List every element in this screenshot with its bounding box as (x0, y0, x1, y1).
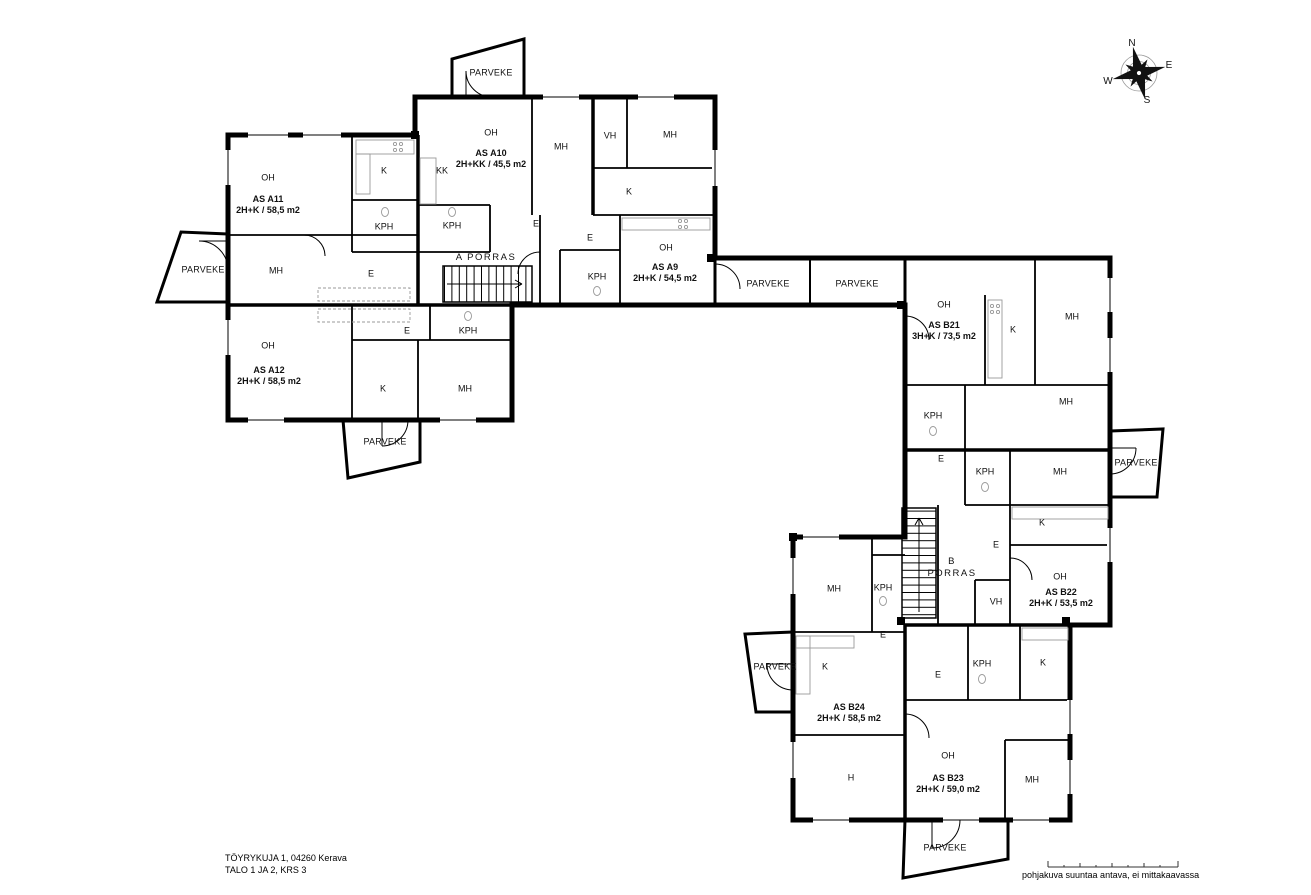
room-label-a11-oh: OH (261, 172, 275, 183)
address-line-2: TALO 1 JA 2, KRS 3 (225, 864, 347, 876)
plan-address: TÖYRYKUJA 1, 04260 Kerava TALO 1 JA 2, K… (225, 852, 347, 876)
address-line-1: TÖYRYKUJA 1, 04260 Kerava (225, 852, 347, 864)
room-label-a10-e: E (533, 218, 539, 229)
room-label-b21-k: K (1010, 324, 1016, 335)
balcony-label-a10: PARVEKE (469, 67, 512, 78)
floor-plan-page: AS A11 2H+K / 58,5 m2AS A10 2H+KK / 45,5… (0, 0, 1311, 895)
room-label-a9-vh: VH (604, 130, 617, 141)
room-label-b23-k: K (1040, 657, 1046, 668)
room-label-b23-mh: MH (1025, 774, 1039, 785)
room-label-a12-oh: OH (261, 340, 275, 351)
apartment-label-a10: AS A10 2H+KK / 45,5 m2 (456, 148, 526, 171)
room-label-a11-kph: KPH (375, 221, 394, 232)
stairwell-label-b: B PORRAS (927, 556, 976, 580)
room-label-b23-oh: OH (941, 750, 955, 761)
balcony-label-b24: PARVEKE (753, 661, 796, 672)
compass-north: N (1128, 38, 1135, 51)
room-label-b21-e: E (938, 453, 944, 464)
label-layer: AS A11 2H+K / 58,5 m2AS A10 2H+KK / 45,5… (0, 0, 1311, 895)
room-label-a9-oh: OH (659, 242, 673, 253)
room-label-b23-kph: KPH (973, 658, 992, 669)
room-label-b21-kph: KPH (924, 410, 943, 421)
apartment-label-b24: AS B24 2H+K / 58,5 m2 (817, 702, 881, 725)
room-label-a11-k: K (381, 165, 387, 176)
room-label-a9-kph: KPH (588, 271, 607, 282)
room-label-b24-mh: MH (827, 583, 841, 594)
compass-east: E (1166, 60, 1173, 73)
balcony-label-a12: PARVEKE (363, 436, 406, 447)
balcony-label-b21: PARVEKE (1114, 457, 1157, 468)
room-label-a10-oh: OH (484, 127, 498, 138)
room-label-a9-e: E (587, 232, 593, 243)
apartment-label-b21: AS B21 3H+K / 73,5 m2 (912, 320, 976, 343)
room-label-b22-oh: OH (1053, 571, 1067, 582)
room-label-b22-e: E (993, 539, 999, 550)
room-label-a12-mh: MH (458, 383, 472, 394)
apartment-label-b22: AS B22 2H+K / 53,5 m2 (1029, 587, 1093, 610)
apartment-label-a9: AS A9 2H+K / 54,5 m2 (633, 262, 697, 285)
stairwell-label-a: A PORRAS (456, 252, 517, 264)
balcony-label-b23: PARVEKE (923, 842, 966, 853)
compass-west: W (1103, 76, 1112, 89)
room-label-b21-mh2: MH (1059, 396, 1073, 407)
room-label-a9-k: K (626, 186, 632, 197)
room-label-b22-k: K (1039, 517, 1045, 528)
apartment-label-b23: AS B23 2H+K / 59,0 m2 (916, 773, 980, 796)
room-label-b24-e: E (880, 629, 886, 640)
room-label-a9-mh: MH (663, 129, 677, 140)
room-label-b24-h: H (848, 772, 855, 783)
room-label-a10-kk: KK (436, 165, 448, 176)
room-label-b24-kph: KPH (874, 582, 893, 593)
room-label-b21-mh1: MH (1065, 311, 1079, 322)
balcony-label-a11: PARVEKE (181, 264, 224, 275)
room-label-a11-e: E (368, 268, 374, 279)
balcony-label-corridor-2: PARVEKE (835, 278, 878, 289)
room-label-a10-kph: KPH (443, 220, 462, 231)
room-label-a12-e: E (404, 325, 410, 336)
room-label-b23-e: E (935, 669, 941, 680)
room-label-a12-k: K (380, 383, 386, 394)
balcony-label-corridor-1: PARVEKE (746, 278, 789, 289)
apartment-label-a11: AS A11 2H+K / 58,5 m2 (236, 194, 300, 217)
room-label-b24-k: K (822, 661, 828, 672)
room-label-a12-kph: KPH (459, 325, 478, 336)
room-label-b22-mh: MH (1053, 466, 1067, 477)
room-label-a11-mh: MH (269, 265, 283, 276)
plan-disclaimer: pohjakuva suuntaa antava, ei mittakaavas… (1022, 870, 1199, 880)
room-label-a10-mh: MH (554, 141, 568, 152)
room-label-b21-oh: OH (937, 299, 951, 310)
apartment-label-a12: AS A12 2H+K / 58,5 m2 (237, 365, 301, 388)
room-label-b22-kph: KPH (976, 466, 995, 477)
room-label-b22-vh: VH (990, 596, 1003, 607)
compass-south: S (1144, 95, 1151, 108)
